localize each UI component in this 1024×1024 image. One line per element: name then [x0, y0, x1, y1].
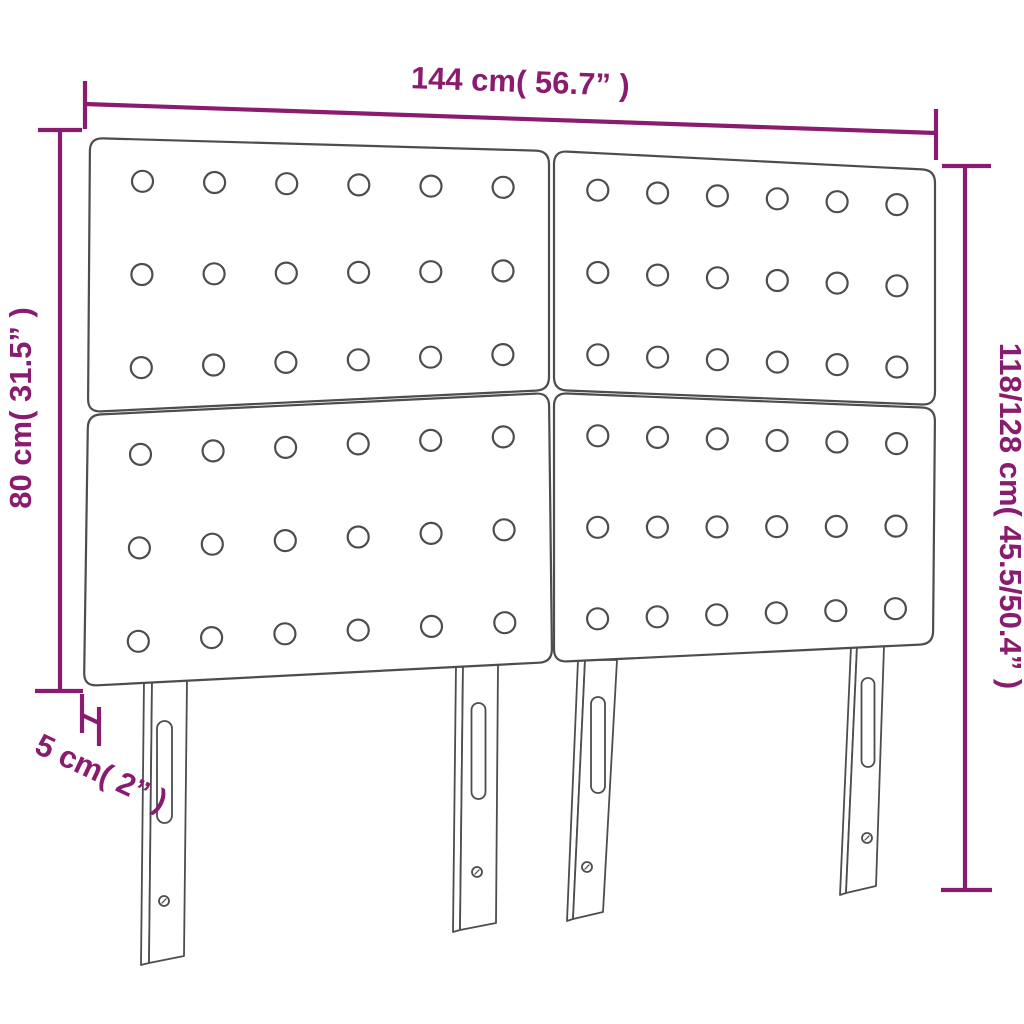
- tuft-button: [825, 600, 846, 621]
- tuft-button: [348, 262, 369, 283]
- tuft-button: [886, 194, 907, 215]
- tuft-button: [707, 349, 728, 370]
- tuft-button: [493, 260, 514, 281]
- headboard-panels: [84, 138, 935, 685]
- headboard-panel-top-left: [88, 138, 549, 411]
- tuft-button: [274, 623, 295, 644]
- tuft-button: [421, 523, 442, 544]
- tuft-button: [707, 428, 728, 449]
- tuft-button: [587, 608, 608, 629]
- tuft-button: [647, 606, 668, 627]
- tuft-button: [421, 616, 442, 637]
- tuft-button: [587, 425, 608, 446]
- tuft-button: [827, 273, 848, 294]
- tuft-button: [767, 430, 788, 451]
- tuft-button: [203, 355, 224, 376]
- tuft-button: [348, 527, 369, 548]
- tuft-button: [767, 270, 788, 291]
- headboard-leg: [567, 660, 617, 921]
- tuft-button: [647, 265, 668, 286]
- headboard-panel-bottom-right: [554, 393, 935, 661]
- headboard-diagram-canvas: 144 cm( 56.7” ) 80 cm( 31.5” ) 118/128 c…: [0, 0, 1024, 1024]
- tuft-button: [587, 180, 608, 201]
- tuft-button: [204, 172, 225, 193]
- tuft-button: [275, 352, 296, 373]
- tuft-button: [421, 176, 442, 197]
- leg-adjustment-slot: [472, 703, 486, 799]
- tuft-button: [766, 602, 787, 623]
- headboard-leg: [141, 680, 187, 965]
- height-right-dimension-label: 118/128 cm( 45.5/50.4” ): [993, 343, 1024, 689]
- tuft-button: [886, 357, 907, 378]
- tuft-button: [767, 352, 788, 373]
- tuft-button: [201, 627, 222, 648]
- headboard-panel-bottom-left: [84, 394, 552, 686]
- tuft-button: [493, 177, 514, 198]
- tuft-button: [420, 347, 441, 368]
- tuft-button: [204, 263, 225, 284]
- headboard-legs: [141, 646, 884, 965]
- tuft-button: [128, 631, 149, 652]
- tuft-button: [348, 349, 369, 370]
- tuft-button: [587, 517, 608, 538]
- tuft-button: [827, 191, 848, 212]
- tuft-button: [276, 173, 297, 194]
- tuft-button: [348, 174, 369, 195]
- tuft-button: [647, 517, 668, 538]
- tuft-button: [494, 612, 515, 633]
- tuft-button: [766, 516, 787, 537]
- tuft-button: [647, 427, 668, 448]
- headboard-leg: [453, 664, 498, 932]
- tuft-button: [493, 426, 514, 447]
- tuft-button: [131, 357, 152, 378]
- tuft-button: [827, 354, 848, 375]
- tuft-button: [275, 530, 296, 551]
- leg-adjustment-slot: [862, 678, 875, 767]
- dimension-height-right: 118/128 cm( 45.5/50.4” ): [941, 166, 1024, 890]
- tuft-button: [130, 444, 151, 465]
- tuft-button: [348, 620, 369, 641]
- tuft-button: [707, 267, 728, 288]
- tuft-button: [706, 604, 727, 625]
- tuft-button: [885, 598, 906, 619]
- tuft-button: [587, 262, 608, 283]
- tuft-button: [494, 519, 515, 540]
- headboard-panel-top-right: [554, 152, 935, 405]
- tuft-button: [826, 516, 847, 537]
- tuft-button: [202, 534, 223, 555]
- tuft-button: [132, 171, 153, 192]
- headboard-leg: [840, 646, 884, 895]
- tuft-button: [129, 537, 150, 558]
- dimension-line: [82, 715, 99, 723]
- tuft-button: [276, 263, 297, 284]
- tuft-button: [587, 344, 608, 365]
- tuft-button: [886, 516, 907, 537]
- tuft-button: [826, 432, 847, 453]
- tuft-button: [131, 264, 152, 285]
- tuft-button: [492, 344, 513, 365]
- tuft-button: [647, 347, 668, 368]
- leg-adjustment-slot: [591, 697, 605, 793]
- tuft-button: [707, 516, 728, 537]
- height-left-dimension-label: 80 cm( 31.5” ): [3, 307, 38, 509]
- tuft-button: [203, 440, 224, 461]
- width-dimension-label: 144 cm( 56.7” ): [410, 60, 630, 103]
- tuft-button: [348, 433, 369, 454]
- tuft-button: [886, 433, 907, 454]
- tuft-button: [647, 183, 668, 204]
- tuft-button: [420, 430, 441, 451]
- tuft-button: [707, 185, 728, 206]
- dimension-height-left: 80 cm( 31.5” ): [3, 130, 83, 691]
- dimension-diagram: 144 cm( 56.7” ) 80 cm( 31.5” ) 118/128 c…: [0, 0, 1024, 1024]
- tuft-button: [886, 275, 907, 296]
- tuft-button: [767, 188, 788, 209]
- tuft-button: [420, 261, 441, 282]
- tuft-button: [275, 437, 296, 458]
- dimension-line: [85, 104, 936, 133]
